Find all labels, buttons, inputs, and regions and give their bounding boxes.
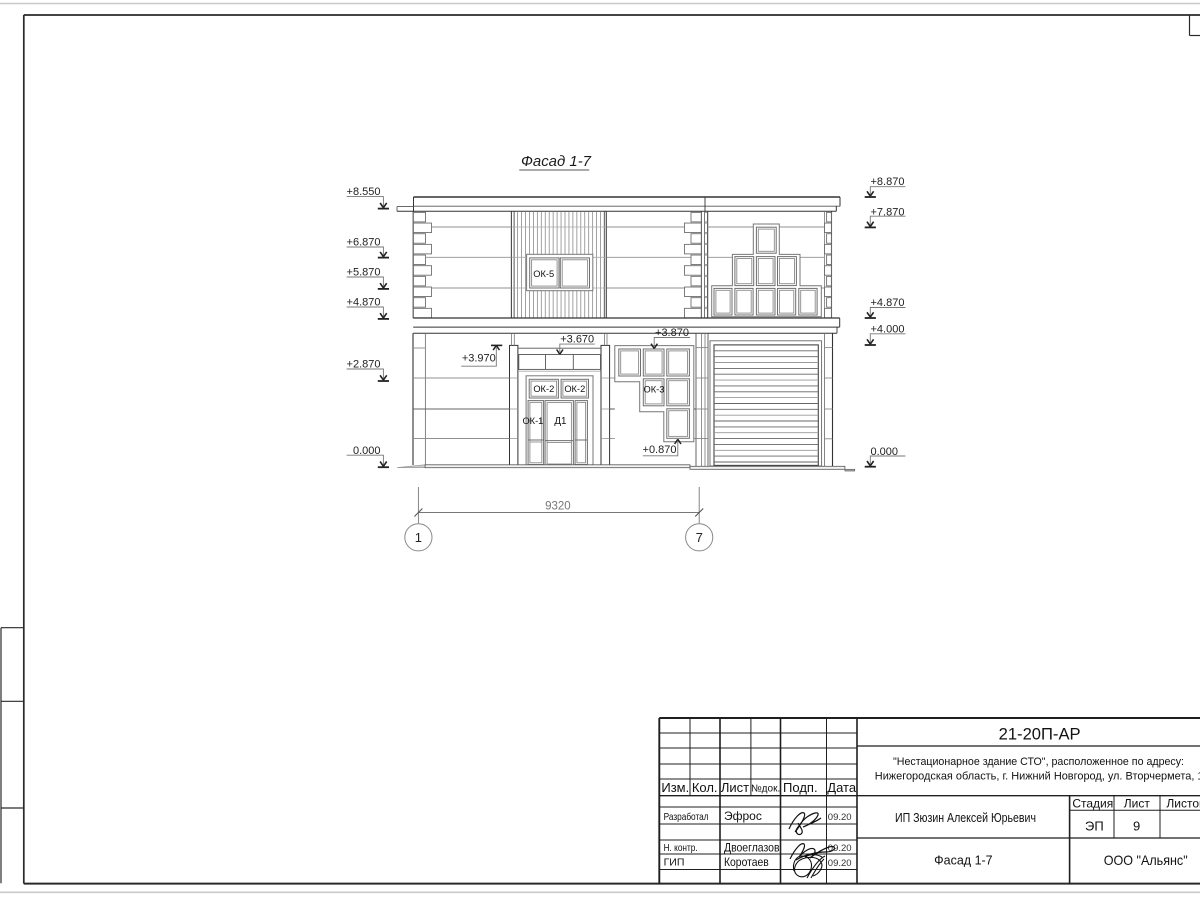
- svg-text:Разработал: Разработал: [664, 811, 709, 823]
- svg-text:Двоеглазов: Двоеглазов: [724, 840, 780, 854]
- svg-text:+3.970: +3.970: [462, 353, 496, 365]
- svg-text:Дата: Дата: [827, 780, 857, 795]
- svg-text:Д1: Д1: [554, 416, 566, 427]
- svg-text:№док.: №док.: [751, 784, 780, 795]
- svg-text:09.20: 09.20: [828, 843, 852, 854]
- svg-text:Подп.: Подп.: [783, 780, 818, 795]
- svg-text:7: 7: [696, 530, 703, 545]
- svg-text:Изм.: Изм.: [661, 780, 689, 795]
- svg-text:+0.870: +0.870: [643, 444, 677, 456]
- svg-text:ООО "Альянс": ООО "Альянс": [1104, 852, 1188, 868]
- svg-text:Лист: Лист: [1124, 797, 1151, 811]
- svg-text:ОК-2: ОК-2: [533, 384, 554, 394]
- svg-text:ЭП: ЭП: [1085, 818, 1104, 833]
- svg-text:"Нестационарное здание СТО", р: "Нестационарное здание СТО", расположенн…: [893, 756, 1184, 768]
- svg-text:ГИП: ГИП: [664, 857, 685, 869]
- svg-text:Лист: Лист: [721, 780, 749, 795]
- svg-text:Эфрос: Эфрос: [724, 809, 762, 823]
- svg-text:21-20П-АР: 21-20П-АР: [999, 725, 1081, 744]
- svg-text:ОК-1: ОК-1: [522, 416, 543, 426]
- svg-text:Н. контр.: Н. контр.: [664, 842, 698, 854]
- svg-text:09.20: 09.20: [828, 812, 852, 823]
- svg-text:9320: 9320: [545, 500, 571, 512]
- svg-text:Листов: Листов: [1166, 797, 1200, 811]
- svg-text:9: 9: [1133, 818, 1140, 833]
- svg-text:Стадия: Стадия: [1072, 797, 1113, 811]
- svg-text:Коротаев: Коротаев: [724, 855, 769, 869]
- svg-text:Нижегородская область, г. Нижн: Нижегородская область, г. Нижний Новгоро…: [875, 771, 1200, 783]
- svg-text:ИП Зюзин Алексей Юрьевич: ИП Зюзин Алексей Юрьевич: [895, 811, 1036, 825]
- svg-text:Кол.: Кол.: [692, 780, 718, 795]
- svg-text:1: 1: [415, 530, 422, 545]
- svg-text:Фасад 1-7: Фасад 1-7: [934, 854, 993, 868]
- svg-text:Фасад 1-7: Фасад 1-7: [521, 154, 592, 170]
- svg-text:ОК-3: ОК-3: [644, 385, 665, 395]
- svg-text:09.20: 09.20: [828, 858, 852, 869]
- svg-text:ОК-2: ОК-2: [564, 384, 585, 394]
- svg-text:ОК-5: ОК-5: [533, 269, 554, 279]
